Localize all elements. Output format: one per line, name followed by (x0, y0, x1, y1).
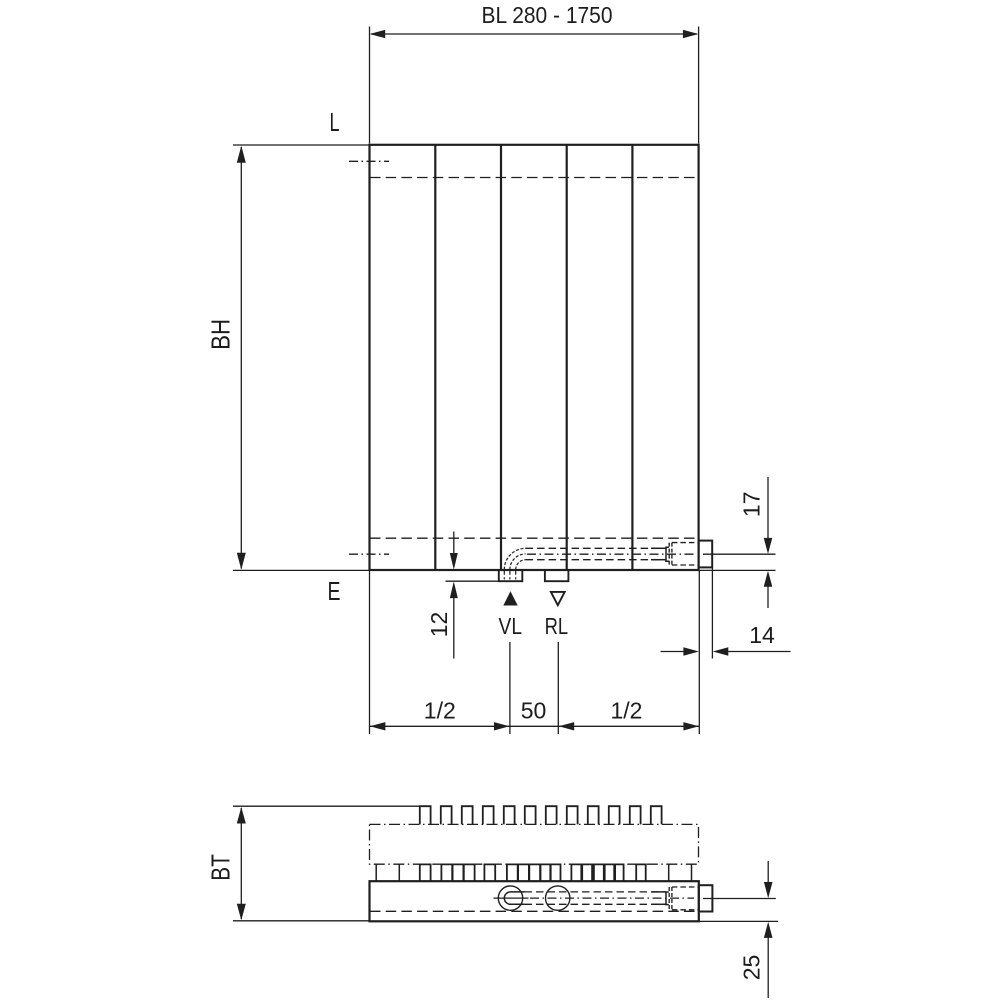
svg-text:BT: BT (205, 854, 235, 881)
svg-text:L: L (330, 109, 340, 137)
svg-text:E: E (328, 578, 341, 606)
svg-text:BH: BH (205, 319, 235, 350)
svg-text:50: 50 (521, 697, 547, 723)
svg-text:1/2: 1/2 (424, 697, 456, 723)
svg-text:17: 17 (739, 492, 765, 518)
svg-text:14: 14 (749, 622, 775, 648)
svg-text:RL: RL (545, 613, 569, 639)
svg-text:25: 25 (739, 955, 765, 981)
svg-text:12: 12 (426, 612, 452, 638)
svg-text:VL: VL (499, 613, 523, 639)
svg-text:1/2: 1/2 (611, 697, 643, 723)
svg-text:BL 280 - 1750: BL 280 - 1750 (482, 2, 613, 28)
